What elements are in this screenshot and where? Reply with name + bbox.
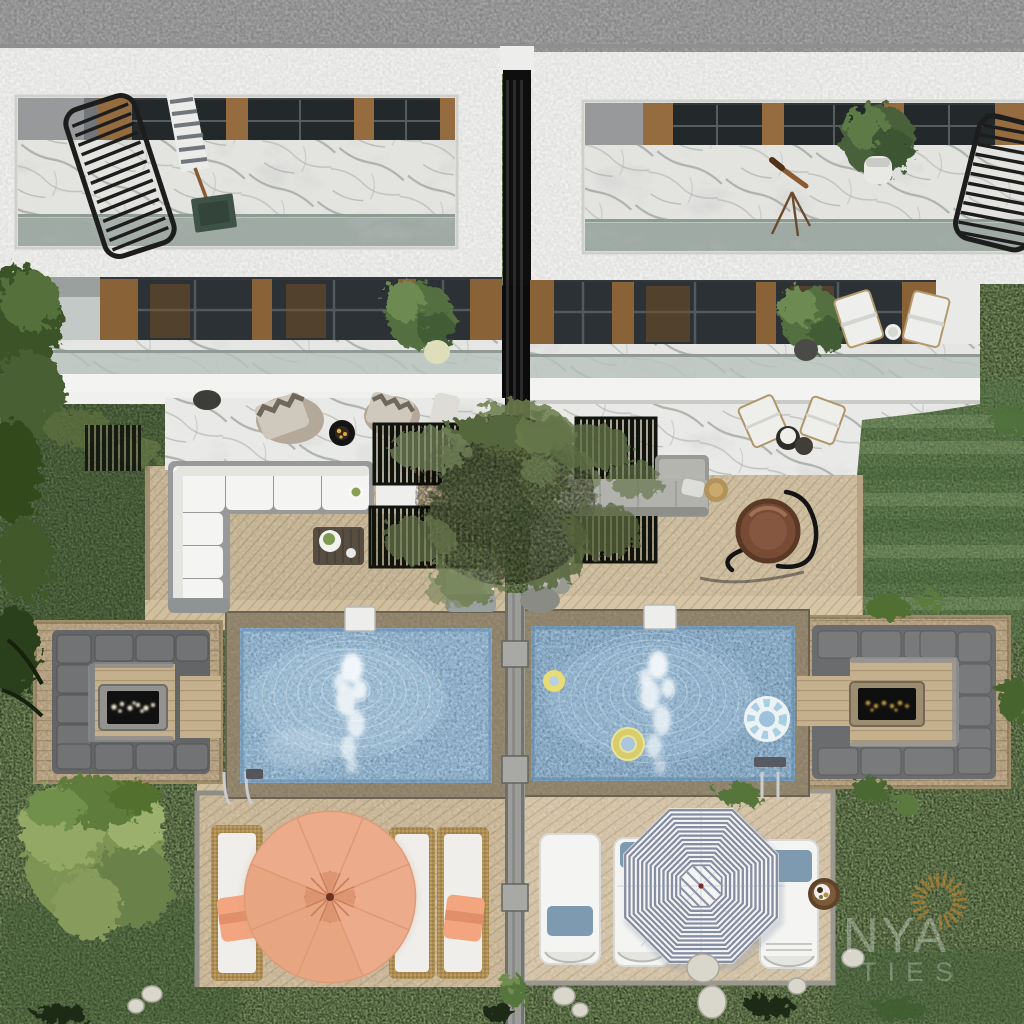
svg-text:NYA: NYA	[843, 909, 949, 963]
svg-text:TIES: TIES	[860, 957, 964, 987]
